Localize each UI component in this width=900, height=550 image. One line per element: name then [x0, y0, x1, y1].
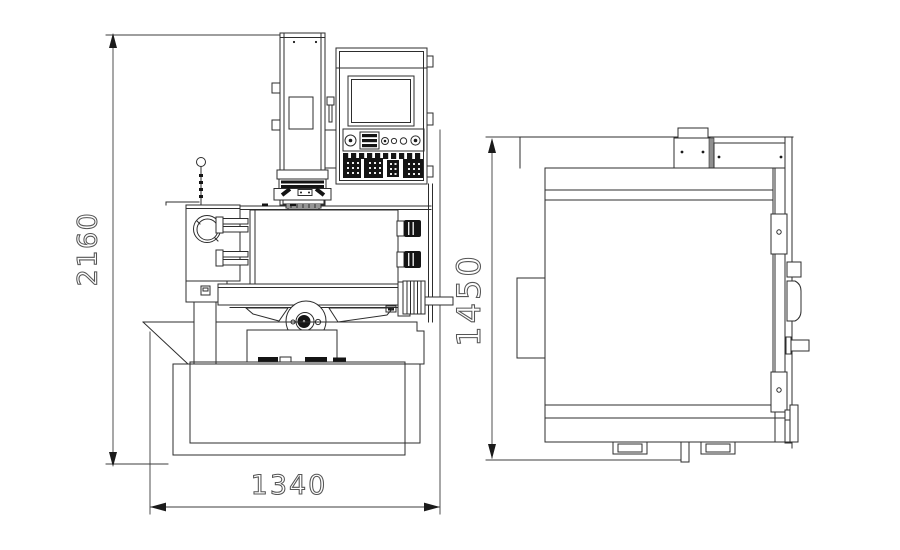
- technical-drawing-canvas: 2160 1340: [0, 0, 900, 550]
- work-tank: [216, 210, 421, 284]
- keypad-block[interactable]: [343, 158, 423, 178]
- bottom-band: [545, 418, 790, 442]
- control-knob[interactable]: [391, 138, 396, 143]
- pump-foot: [194, 302, 216, 364]
- column-clips: [272, 83, 280, 130]
- column-latch: [325, 97, 336, 168]
- door-latch[interactable]: [787, 262, 801, 277]
- top-junction-box: [714, 143, 785, 168]
- x-handwheel[interactable]: [398, 281, 453, 316]
- level-rod: [166, 158, 206, 206]
- door-clamp-lower[interactable]: [397, 251, 421, 268]
- depth-dimension-label: 1450: [450, 253, 488, 346]
- filter-box: [674, 128, 785, 168]
- drain-pipe: [681, 442, 689, 462]
- height-dimension: 2160: [73, 33, 281, 467]
- door-clamp-upper[interactable]: [397, 220, 421, 237]
- handwheel-shaft: [425, 297, 453, 305]
- column-window: [289, 97, 313, 129]
- height-dimension-label: 2160: [73, 212, 104, 287]
- indicator-stack: [360, 132, 379, 149]
- front-view: 2160 1340: [73, 33, 454, 514]
- door-strip: [771, 138, 809, 448]
- machine-drawing: 2160 1340: [0, 0, 900, 550]
- pendant-screen: [348, 76, 414, 126]
- tank-rim-top: [545, 168, 773, 190]
- saddle: [230, 301, 398, 362]
- control-knob[interactable]: [400, 138, 406, 144]
- side-view: 1450: [450, 128, 809, 462]
- width-dimension-label: 1340: [251, 470, 328, 501]
- chuck: [274, 187, 331, 200]
- cabinet-hinges: [427, 56, 433, 177]
- left-bracket: [517, 278, 545, 358]
- machine-feet: [613, 442, 735, 462]
- side-handle[interactable]: [786, 337, 809, 354]
- tank-body: [545, 168, 790, 442]
